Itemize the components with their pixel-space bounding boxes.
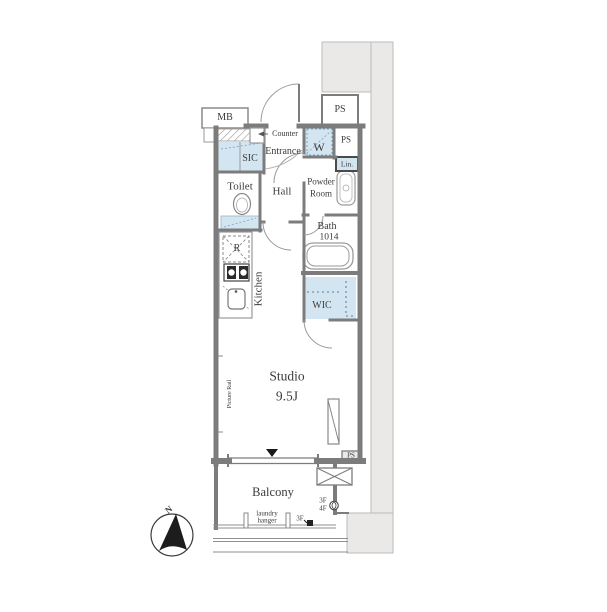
label-entrance: Entrance [265, 147, 301, 157]
balcony-railing [213, 513, 348, 552]
label-wic: WIC [312, 301, 331, 311]
vanity-icon [337, 171, 355, 205]
entrance-door-arc [261, 84, 299, 122]
compass-icon [151, 514, 193, 556]
stove-icon [224, 264, 249, 281]
label-hall: Hall [273, 187, 292, 198]
laundry-post-icon [244, 513, 248, 528]
label-ps-bottom: PS [347, 453, 355, 460]
label-sic: SIC [242, 154, 258, 164]
label-fridge: R [234, 244, 241, 254]
label-mb: MB [217, 113, 233, 123]
label-balcony: Balcony [252, 486, 294, 499]
label-counter: Counter [272, 130, 298, 138]
label-3f-drain: 3F [319, 498, 326, 505]
studio-door-panel [328, 399, 339, 444]
window-marker-icon [266, 449, 278, 457]
picture-rail-ticks [218, 356, 223, 432]
floor-plan: MB PS Counter Entrance SIC W PS Lin. Toi… [0, 0, 607, 612]
label-laundry-2: hanger [257, 518, 276, 525]
label-studio: Studio [269, 369, 304, 383]
faucet-icon [307, 520, 313, 526]
label-ps-right: PS [341, 136, 351, 145]
label-4f-drain: 4F [319, 506, 326, 513]
label-kitchen: Kitchen [254, 272, 265, 307]
label-washer: W [313, 141, 324, 153]
studio-window [228, 449, 318, 467]
label-powder-2: Room [310, 190, 332, 199]
hall-door-arc [263, 222, 291, 250]
label-3f-faucet: 3F [296, 516, 303, 523]
label-powder-1: Powder [307, 178, 335, 187]
label-linen: Lin. [341, 160, 353, 168]
label-picture-rail: Picture Rail [227, 380, 233, 409]
label-toilet: Toilet [227, 182, 253, 193]
powder-door-arc [274, 153, 304, 183]
laundry-post-icon [286, 513, 290, 528]
label-bath: Bath [318, 222, 337, 232]
label-studio-size: 9.5J [276, 389, 298, 403]
wic-door-arc [304, 320, 332, 348]
label-bath-size: 1014 [320, 233, 339, 243]
bathtub-icon [303, 243, 353, 269]
balcony-equipment-box [317, 468, 352, 485]
label-ps-top: PS [334, 105, 345, 115]
